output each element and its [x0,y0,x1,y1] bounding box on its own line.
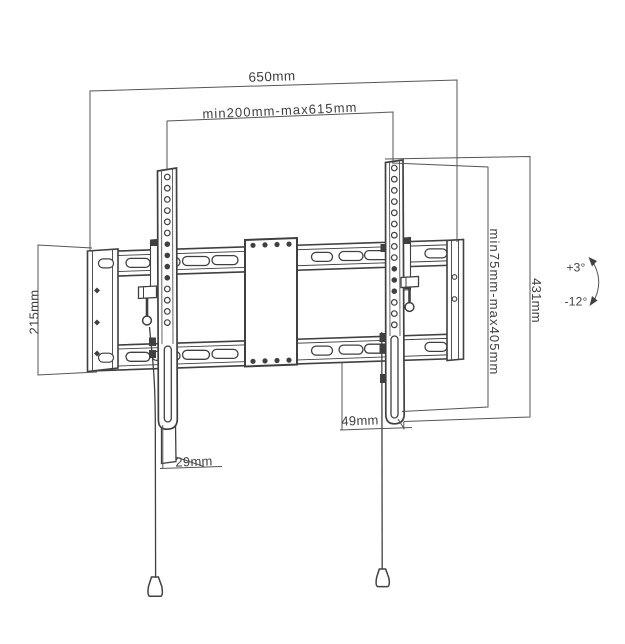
dimension-arm-spacing-range: min200mm-max615mm [167,100,393,169]
dim-total-width-label: 650mm [248,68,296,85]
left-vesa-arm [149,168,177,464]
left-end-bracket [88,249,119,372]
right-arm-hole-column [392,165,398,327]
tilt-arrow-up-icon [589,257,598,267]
tilt-down-label: -12° [565,295,588,309]
dim-left-offset-label: 29mm [175,453,213,469]
left-arm-slot [164,346,171,422]
left-cord-handle [148,577,162,596]
dim-bracket-height-label: 431mm [529,278,544,323]
dim-arm-spacing-label: min200mm-max615mm [202,100,358,122]
center-plate [245,238,297,367]
right-arm-slot [391,336,398,418]
tilt-up-label: +3° [566,261,585,275]
dim-vesa-height-label: min75mm-max405mm [487,229,502,376]
right-cord-handle [376,569,389,587]
dimension-wall-plate-height: 215mm [27,245,98,375]
right-vesa-arm [380,160,411,424]
tilt-arrow-down-icon [590,296,598,306]
left-lock-lever [139,286,157,325]
dim-right-offset-label: 49mm [341,412,379,428]
dim-wall-plate-height-label: 215mm [27,290,42,335]
mount-diagram-canvas: 650mm min200mm-max615mm 215mm min75mm-ma… [0,0,625,644]
tv-wall-mount-technical-drawing: 650mm min200mm-max615mm 215mm min75mm-ma… [0,0,625,644]
right-end-bracket [447,240,464,361]
tilt-range-indicator: +3° -12° [565,257,599,309]
